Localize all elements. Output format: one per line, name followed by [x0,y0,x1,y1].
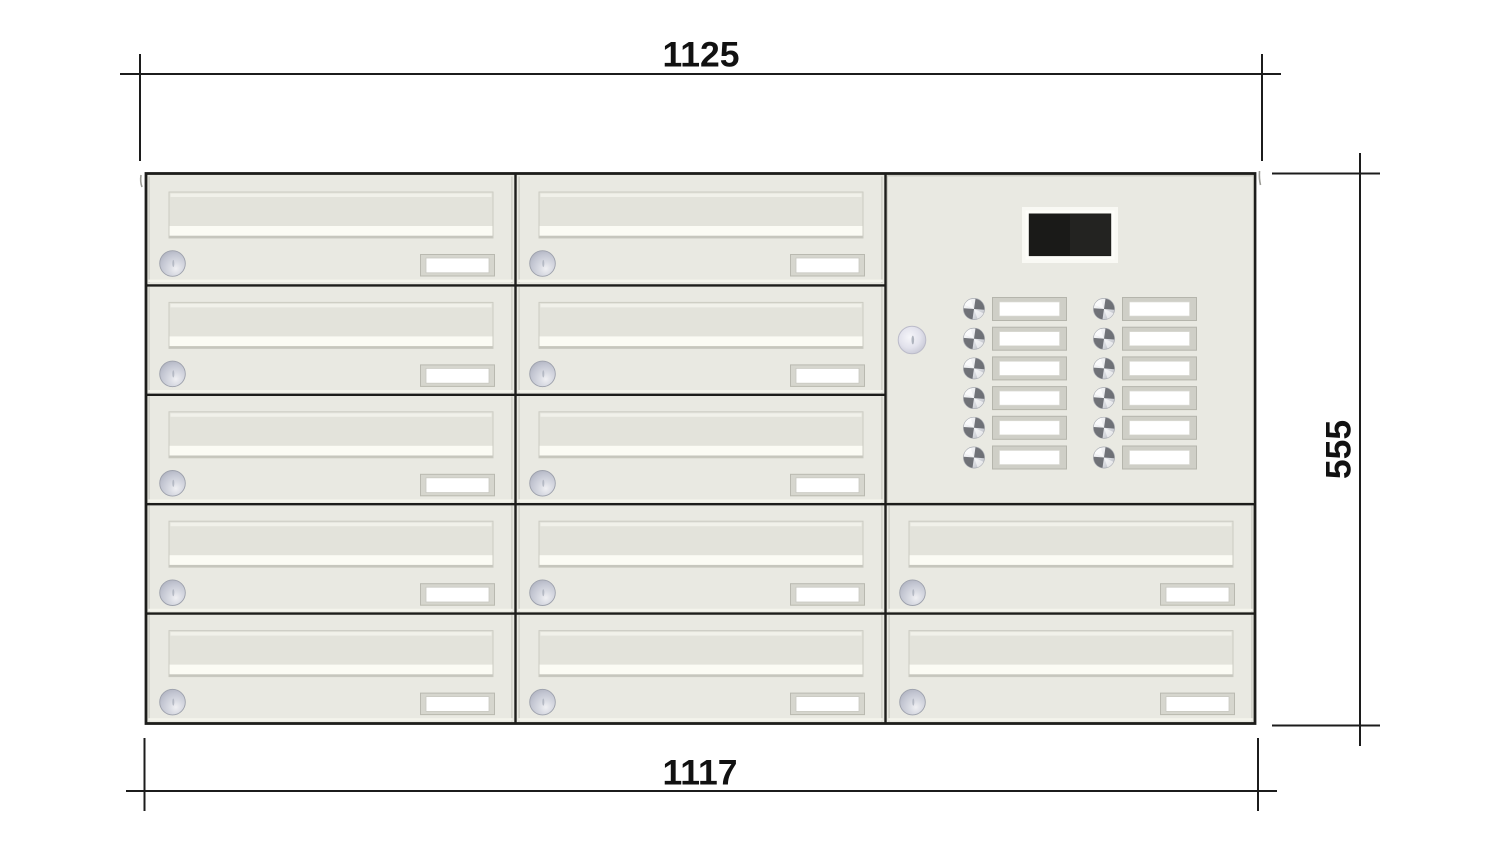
svg-text:555: 555 [1319,420,1359,479]
svg-text:1125: 1125 [662,35,739,75]
svg-text:1117: 1117 [662,753,737,793]
